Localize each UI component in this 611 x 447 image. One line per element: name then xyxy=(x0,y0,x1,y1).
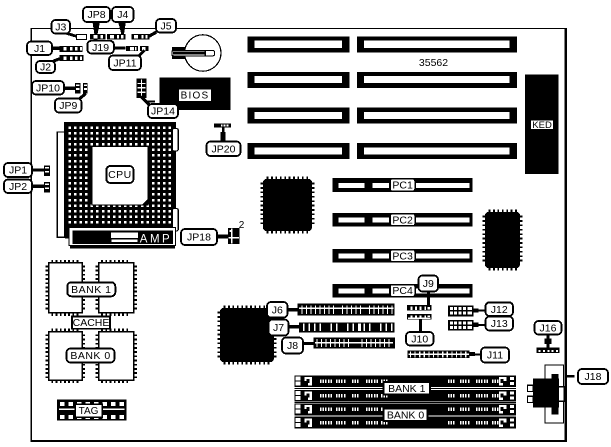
svg-text:BANK 1: BANK 1 xyxy=(388,383,426,395)
svg-text:J1: J1 xyxy=(34,43,45,55)
svg-text:BIOS: BIOS xyxy=(181,91,210,102)
svg-text:JP9: JP9 xyxy=(59,100,77,112)
svg-text:J7: J7 xyxy=(273,322,284,334)
svg-text:TAG: TAG xyxy=(79,406,99,417)
svg-text:J19: J19 xyxy=(92,42,109,54)
svg-text:BANK 0: BANK 0 xyxy=(387,409,425,421)
svg-text:BANK 0: BANK 0 xyxy=(70,350,110,362)
svg-text:JP14: JP14 xyxy=(151,106,175,118)
svg-text:PC2: PC2 xyxy=(392,214,413,226)
svg-text:JP8: JP8 xyxy=(87,9,105,21)
svg-text:JP20: JP20 xyxy=(212,143,236,155)
svg-text:CPU: CPU xyxy=(108,169,132,181)
svg-text:JP1: JP1 xyxy=(9,165,27,177)
svg-text:J16: J16 xyxy=(540,322,557,334)
svg-text:J10: J10 xyxy=(411,333,428,345)
svg-text:JP18: JP18 xyxy=(187,232,211,244)
svg-text:J11: J11 xyxy=(487,350,503,362)
svg-text:J3: J3 xyxy=(55,21,66,33)
svg-text:JP11: JP11 xyxy=(113,57,136,69)
svg-text:JP2: JP2 xyxy=(9,181,27,193)
svg-text:J4: J4 xyxy=(117,9,128,21)
svg-text:BANK 1: BANK 1 xyxy=(71,284,111,296)
svg-text:PC4: PC4 xyxy=(392,285,413,297)
svg-text:J2: J2 xyxy=(40,62,51,74)
svg-text:35562: 35562 xyxy=(419,57,448,69)
svg-text:J13: J13 xyxy=(491,318,508,330)
svg-text:CACHE: CACHE xyxy=(73,317,110,329)
svg-text:J5: J5 xyxy=(160,20,171,32)
svg-text:JP10: JP10 xyxy=(36,82,60,94)
svg-text:AMP: AMP xyxy=(140,234,172,246)
svg-text:PC1: PC1 xyxy=(392,180,413,192)
svg-text:J18: J18 xyxy=(585,371,602,383)
svg-text:KED: KED xyxy=(532,120,552,131)
svg-text:PC3: PC3 xyxy=(392,250,413,262)
svg-text:J8: J8 xyxy=(287,340,298,352)
svg-text:2: 2 xyxy=(239,220,245,231)
svg-text:J9: J9 xyxy=(423,278,434,290)
svg-text:J6: J6 xyxy=(272,304,283,316)
svg-text:J12: J12 xyxy=(491,304,508,316)
